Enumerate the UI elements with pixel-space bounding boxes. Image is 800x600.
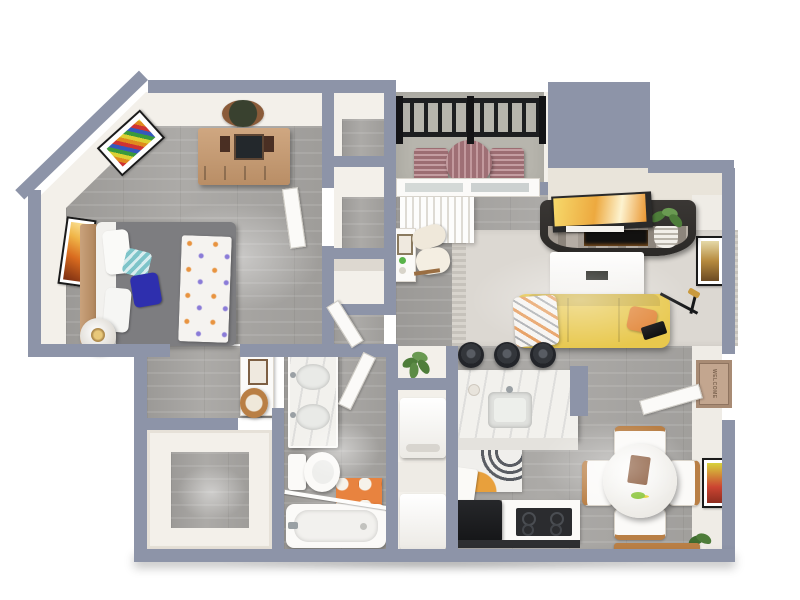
refrigerator (452, 500, 502, 542)
island-sink (488, 392, 532, 428)
desk-smart-panel (399, 257, 406, 264)
wall-closet-column-left-lower (322, 246, 334, 347)
wall-laundry-divider (386, 378, 458, 390)
living-wall-art (696, 236, 724, 286)
coffee-table (550, 252, 644, 298)
wall-north (148, 80, 396, 93)
plant-basket (654, 226, 678, 248)
wall-hall-closet-divider (146, 418, 238, 430)
walk-in-closet (147, 430, 272, 549)
table-greens (631, 492, 645, 499)
book-stack (566, 226, 624, 232)
exterior-wall-mass (548, 82, 650, 168)
double-sink-vanity (288, 352, 338, 448)
basket-plant (650, 210, 684, 250)
balcony-railing (396, 96, 546, 144)
firebox (584, 230, 648, 246)
blue-accent-pillow (129, 272, 162, 308)
desk-chair (240, 388, 268, 418)
dryer (400, 494, 446, 550)
floor-plan-render: WELCOME (0, 0, 800, 600)
wall-west-lower (134, 346, 147, 562)
patterned-throw (178, 235, 232, 343)
vanity-faucet-bottom (290, 412, 296, 418)
vanity-sink-top (296, 364, 330, 390)
wall-closet-column-left-upper (322, 88, 334, 188)
island-front-face (452, 438, 578, 450)
wall-closet-column-right-mid (384, 186, 396, 304)
range-cooktop (516, 508, 572, 536)
toilet (288, 452, 340, 492)
cutting-board (627, 455, 651, 486)
walk-in-closet-floor (171, 452, 249, 528)
wall-bedroom-south-right (240, 344, 398, 357)
bar-stool-1 (458, 342, 484, 368)
hanging-mirror (222, 100, 264, 127)
welcome-mat-text: WELCOME (711, 369, 717, 399)
wall-south (134, 549, 735, 562)
railing-post-right (539, 96, 546, 144)
railing-post-middle (467, 96, 474, 144)
dresser-tv (234, 134, 264, 160)
tub-drain (360, 523, 367, 530)
remote (586, 271, 608, 280)
bar-stool-2 (494, 342, 520, 368)
plan-ground-shadow (120, 560, 750, 576)
closet-upper-b (334, 167, 384, 248)
bar-stool-3 (530, 342, 556, 368)
wall-east-lower (722, 420, 735, 562)
glass-pane-right (471, 183, 529, 192)
railing-post-left (396, 96, 403, 144)
shelf-nook (334, 259, 384, 304)
island-faucet (506, 386, 513, 393)
island-soap-dish (468, 384, 480, 396)
dining-table (603, 444, 677, 518)
vanity-mirror (248, 359, 268, 385)
appliance-kick-strip (452, 540, 580, 548)
wall-bedroom-south-left (28, 344, 170, 357)
table-lamp (91, 328, 105, 342)
sliding-glass-door (396, 178, 540, 197)
dresser-speaker-left (220, 136, 230, 152)
dresser-speaker-right (264, 136, 274, 152)
wall-closet-bath-stub (272, 346, 284, 356)
tub-faucet (288, 522, 298, 529)
vanity-sink-bottom (296, 404, 330, 430)
floor-lamp (640, 290, 700, 340)
lamp-shade (641, 321, 668, 341)
welcome-mat: WELCOME (696, 360, 732, 408)
glass-pane-left (405, 183, 463, 192)
lamp-finial (687, 287, 700, 298)
wall-closet-bath (272, 408, 284, 562)
dresser (198, 128, 290, 185)
wall-east-upper (722, 168, 735, 354)
laundry-shelf (398, 462, 446, 492)
bathtub (286, 504, 386, 548)
lounge-chair (410, 224, 452, 280)
wall-west-bedroom (28, 190, 41, 356)
wall-closet-column-right-upper (384, 88, 396, 186)
island-end-wall (570, 366, 588, 416)
bed (96, 222, 236, 346)
knit-throw (512, 295, 559, 348)
washer (400, 398, 446, 458)
vanity-faucet-top (290, 372, 296, 378)
closet-upper-a (334, 93, 384, 156)
